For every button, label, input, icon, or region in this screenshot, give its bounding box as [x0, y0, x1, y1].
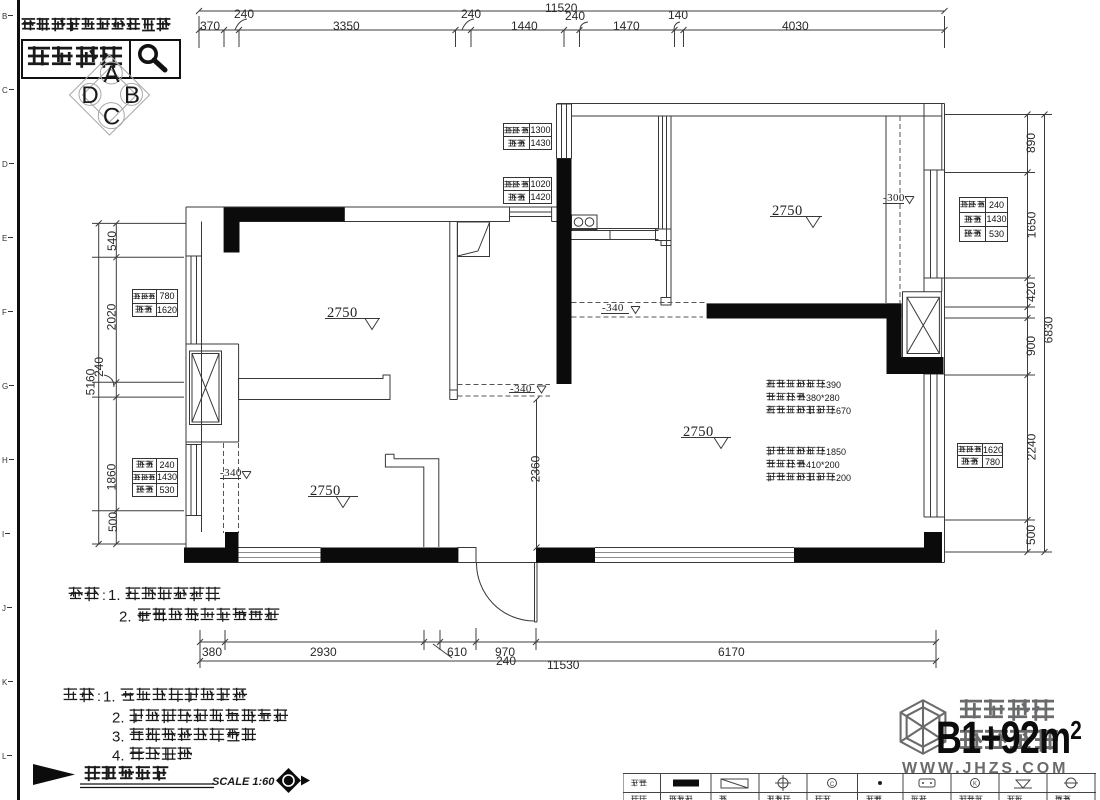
svg-text:B: B: [124, 82, 140, 109]
svg-text:C: C: [103, 104, 120, 131]
svg-text:A: A: [103, 61, 119, 88]
svg-text:K: K: [973, 782, 977, 788]
svg-text:D: D: [81, 82, 98, 109]
svg-text:C: C: [830, 782, 835, 788]
